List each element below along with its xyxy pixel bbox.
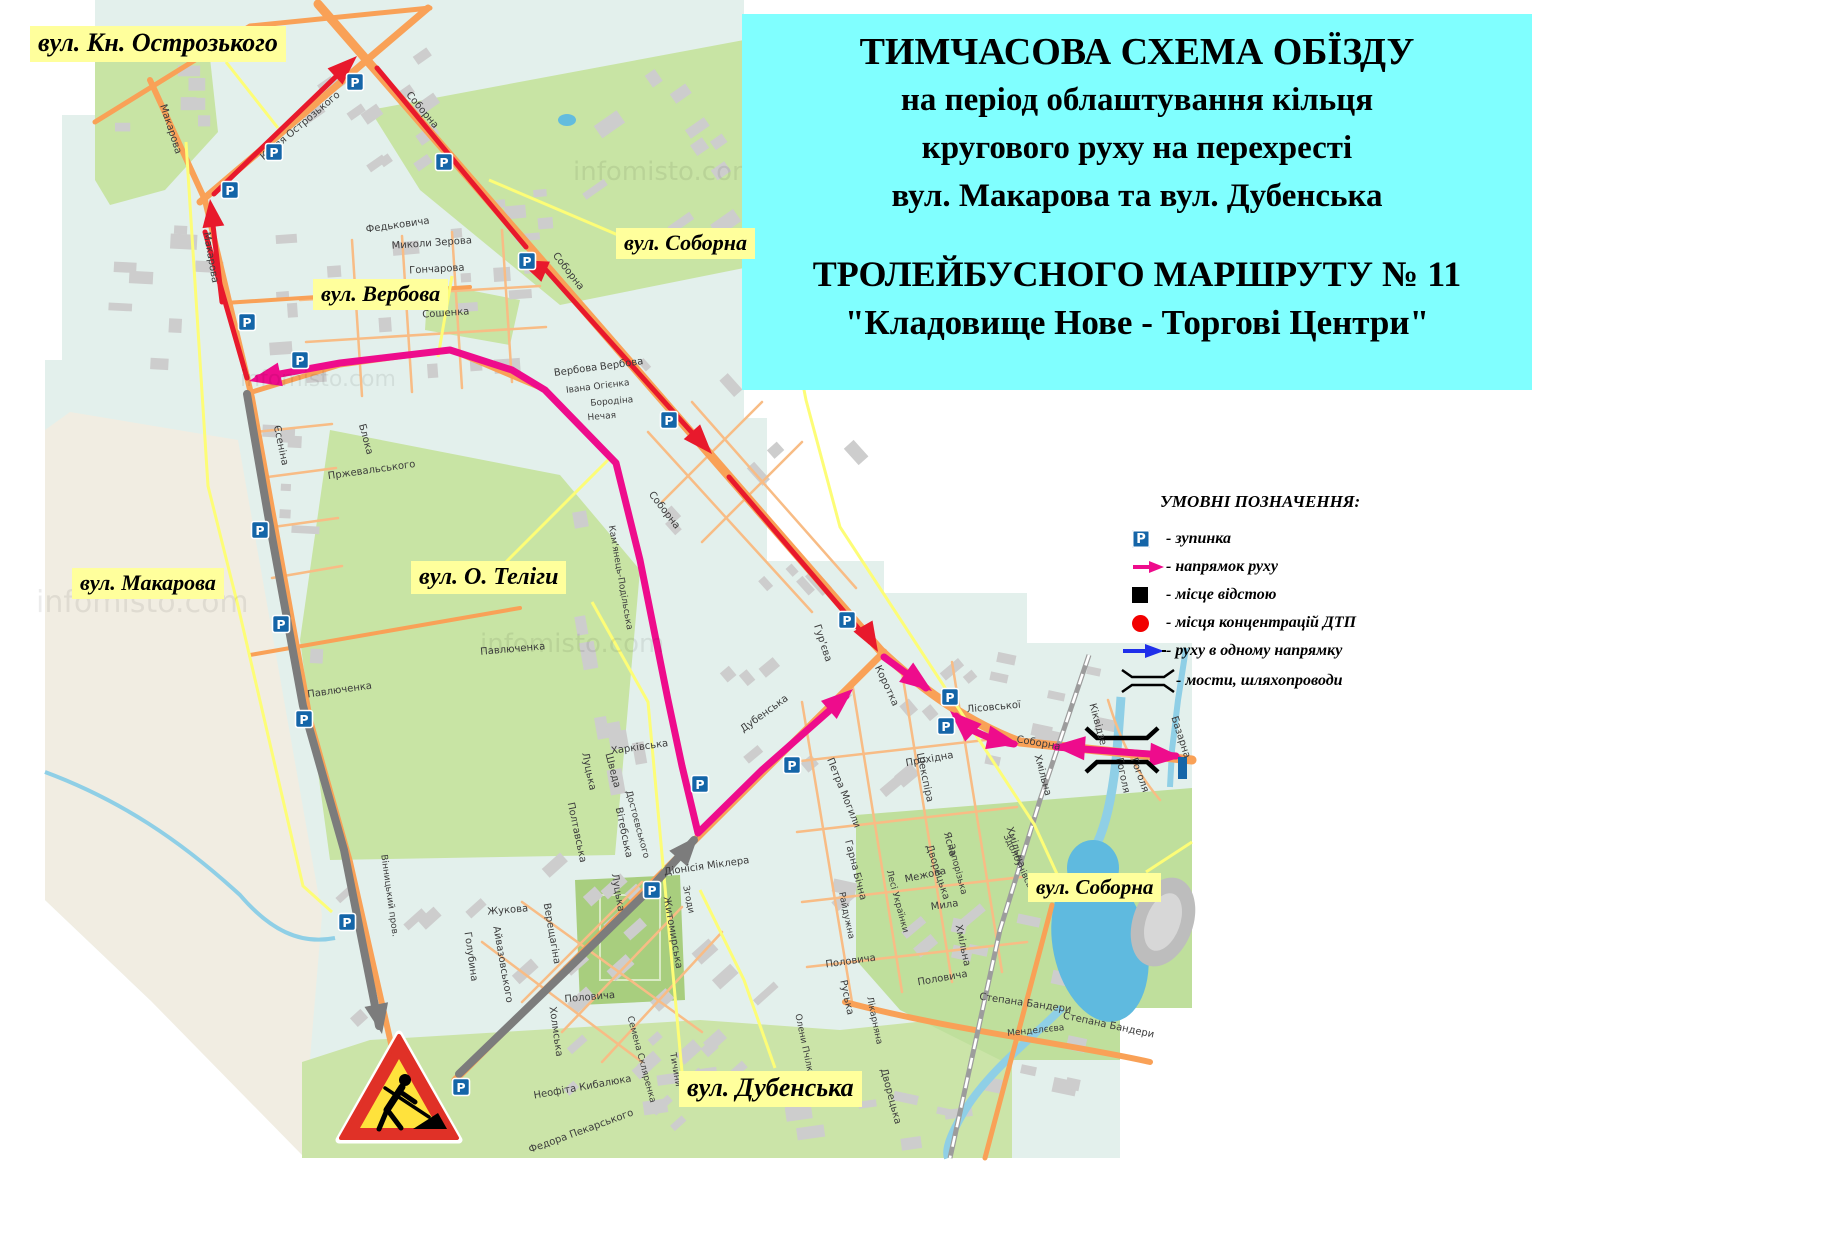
bus-stop-icon: P: [942, 689, 959, 706]
bus-stop-icon: P: [339, 914, 356, 931]
street-label: вул. Вербова: [313, 279, 448, 310]
legend-item-label: - зупинка: [1166, 530, 1231, 548]
bus-stop-icon: P: [519, 253, 536, 270]
bus-stop-icon: P: [296, 711, 313, 728]
bus-stop-icon: P: [347, 74, 364, 91]
bus-stop-icon: P: [252, 522, 269, 539]
svg-text:P: P: [695, 777, 704, 792]
legend-item-bridge: - мости, шляхопроводи: [1118, 668, 1458, 694]
bus-stop-icon: [1178, 757, 1187, 779]
svg-text:P: P: [842, 613, 851, 628]
one-way-arrow-icon: [1118, 643, 1166, 659]
svg-text:P: P: [941, 719, 950, 734]
street-label: вул. О. Теліги: [411, 561, 566, 594]
legend-item-layover: - місце відстою: [1118, 584, 1458, 606]
bus-stop-icon: P: [453, 1079, 470, 1096]
layover-square-icon: [1132, 587, 1148, 603]
street-label: вул. Макарова: [72, 568, 224, 599]
detour-scheme-page: МакароваМакароваКнязя ОстрозькогоСоборна…: [0, 0, 1822, 1234]
svg-text:P: P: [439, 155, 448, 170]
bus-stop-icon: P: [938, 718, 955, 735]
bus-stop-icon: P: [273, 616, 290, 633]
legend-item-accident: - місця концентрацій ДТП: [1118, 612, 1458, 634]
legend-item-label: - місце відстою: [1166, 586, 1276, 604]
bus-stop-icon: P: [839, 612, 856, 629]
street-label: вул. Кн. Острозького: [30, 26, 286, 62]
svg-text:P: P: [299, 712, 308, 727]
svg-text:P: P: [647, 883, 656, 898]
title-box: ТИМЧАСОВА СХЕМА ОБЇЗДУ на період облашту…: [742, 14, 1532, 390]
bus-stop-icon: P: [784, 757, 801, 774]
legend-item-direction: - напрямок руху: [1118, 556, 1458, 578]
title-line: на період облаштування кільця: [742, 82, 1532, 119]
svg-text:P: P: [664, 413, 673, 428]
bus-stop-icon: P: [266, 144, 283, 161]
route-title-line: "Кладовище Нове - Торгові Центри": [742, 303, 1532, 343]
legend-item-label: - мости, шляхопроводи: [1176, 672, 1343, 690]
bus-stop-icon: P: [644, 882, 661, 899]
watermark: infomisto.com: [573, 157, 757, 187]
bus-stop-icon: P: [436, 154, 453, 171]
svg-text:P: P: [350, 75, 359, 90]
watermark: infomisto.com: [480, 629, 664, 659]
legend: УМОВНІ ПОЗНАЧЕННЯ: P - зупинка - напрямо…: [1118, 492, 1458, 694]
street-label: вул. Соборна: [616, 228, 755, 259]
bridge-icon: [1118, 668, 1176, 694]
bus-stop-icon: P: [692, 776, 709, 793]
legend-title: УМОВНІ ПОЗНАЧЕННЯ:: [1160, 492, 1458, 512]
svg-text:P: P: [255, 523, 264, 538]
title-line: кругового руху на перехресті: [742, 130, 1532, 167]
legend-item-label: - руху в одному напрямку: [1166, 642, 1342, 660]
svg-text:P: P: [342, 915, 351, 930]
legend-item-label: - місця концентрацій ДТП: [1166, 614, 1356, 632]
svg-text:P: P: [945, 690, 954, 705]
bus-stop-icon: P: [222, 182, 239, 199]
svg-text:P: P: [295, 353, 304, 368]
bus-stop-icon: P: [239, 314, 256, 331]
svg-text:P: P: [522, 254, 531, 269]
street-label: вул. Дубенська: [679, 1071, 862, 1107]
legend-item-oneway: - руху в одному напрямку: [1118, 640, 1458, 662]
svg-text:P: P: [242, 315, 251, 330]
title-line: ТИМЧАСОВА СХЕМА ОБЇЗДУ: [742, 30, 1532, 74]
bus-stop-icon: P: [292, 352, 309, 369]
legend-item-stop: P - зупинка: [1118, 528, 1458, 550]
svg-text:P: P: [456, 1080, 465, 1095]
route-title-line: ТРОЛЕЙБУСНОГО МАРШРУТУ № 11: [742, 253, 1532, 295]
bus-stop-icon: P: [661, 412, 678, 429]
small-pond: [558, 114, 576, 126]
watermark: infomisto.com: [240, 367, 396, 392]
svg-text:P: P: [225, 183, 234, 198]
legend-item-label: - напрямок руху: [1166, 558, 1278, 576]
direction-arrow-icon: [1118, 560, 1166, 574]
accident-circle-icon: [1132, 615, 1149, 632]
svg-text:P: P: [276, 617, 285, 632]
svg-text:P: P: [787, 758, 796, 773]
street-label: вул. Соборна: [1028, 873, 1161, 902]
bus-stop-icon: P: [1132, 530, 1150, 548]
svg-text:P: P: [269, 145, 278, 160]
title-line: вул. Макарова та вул. Дубенська: [742, 178, 1532, 215]
